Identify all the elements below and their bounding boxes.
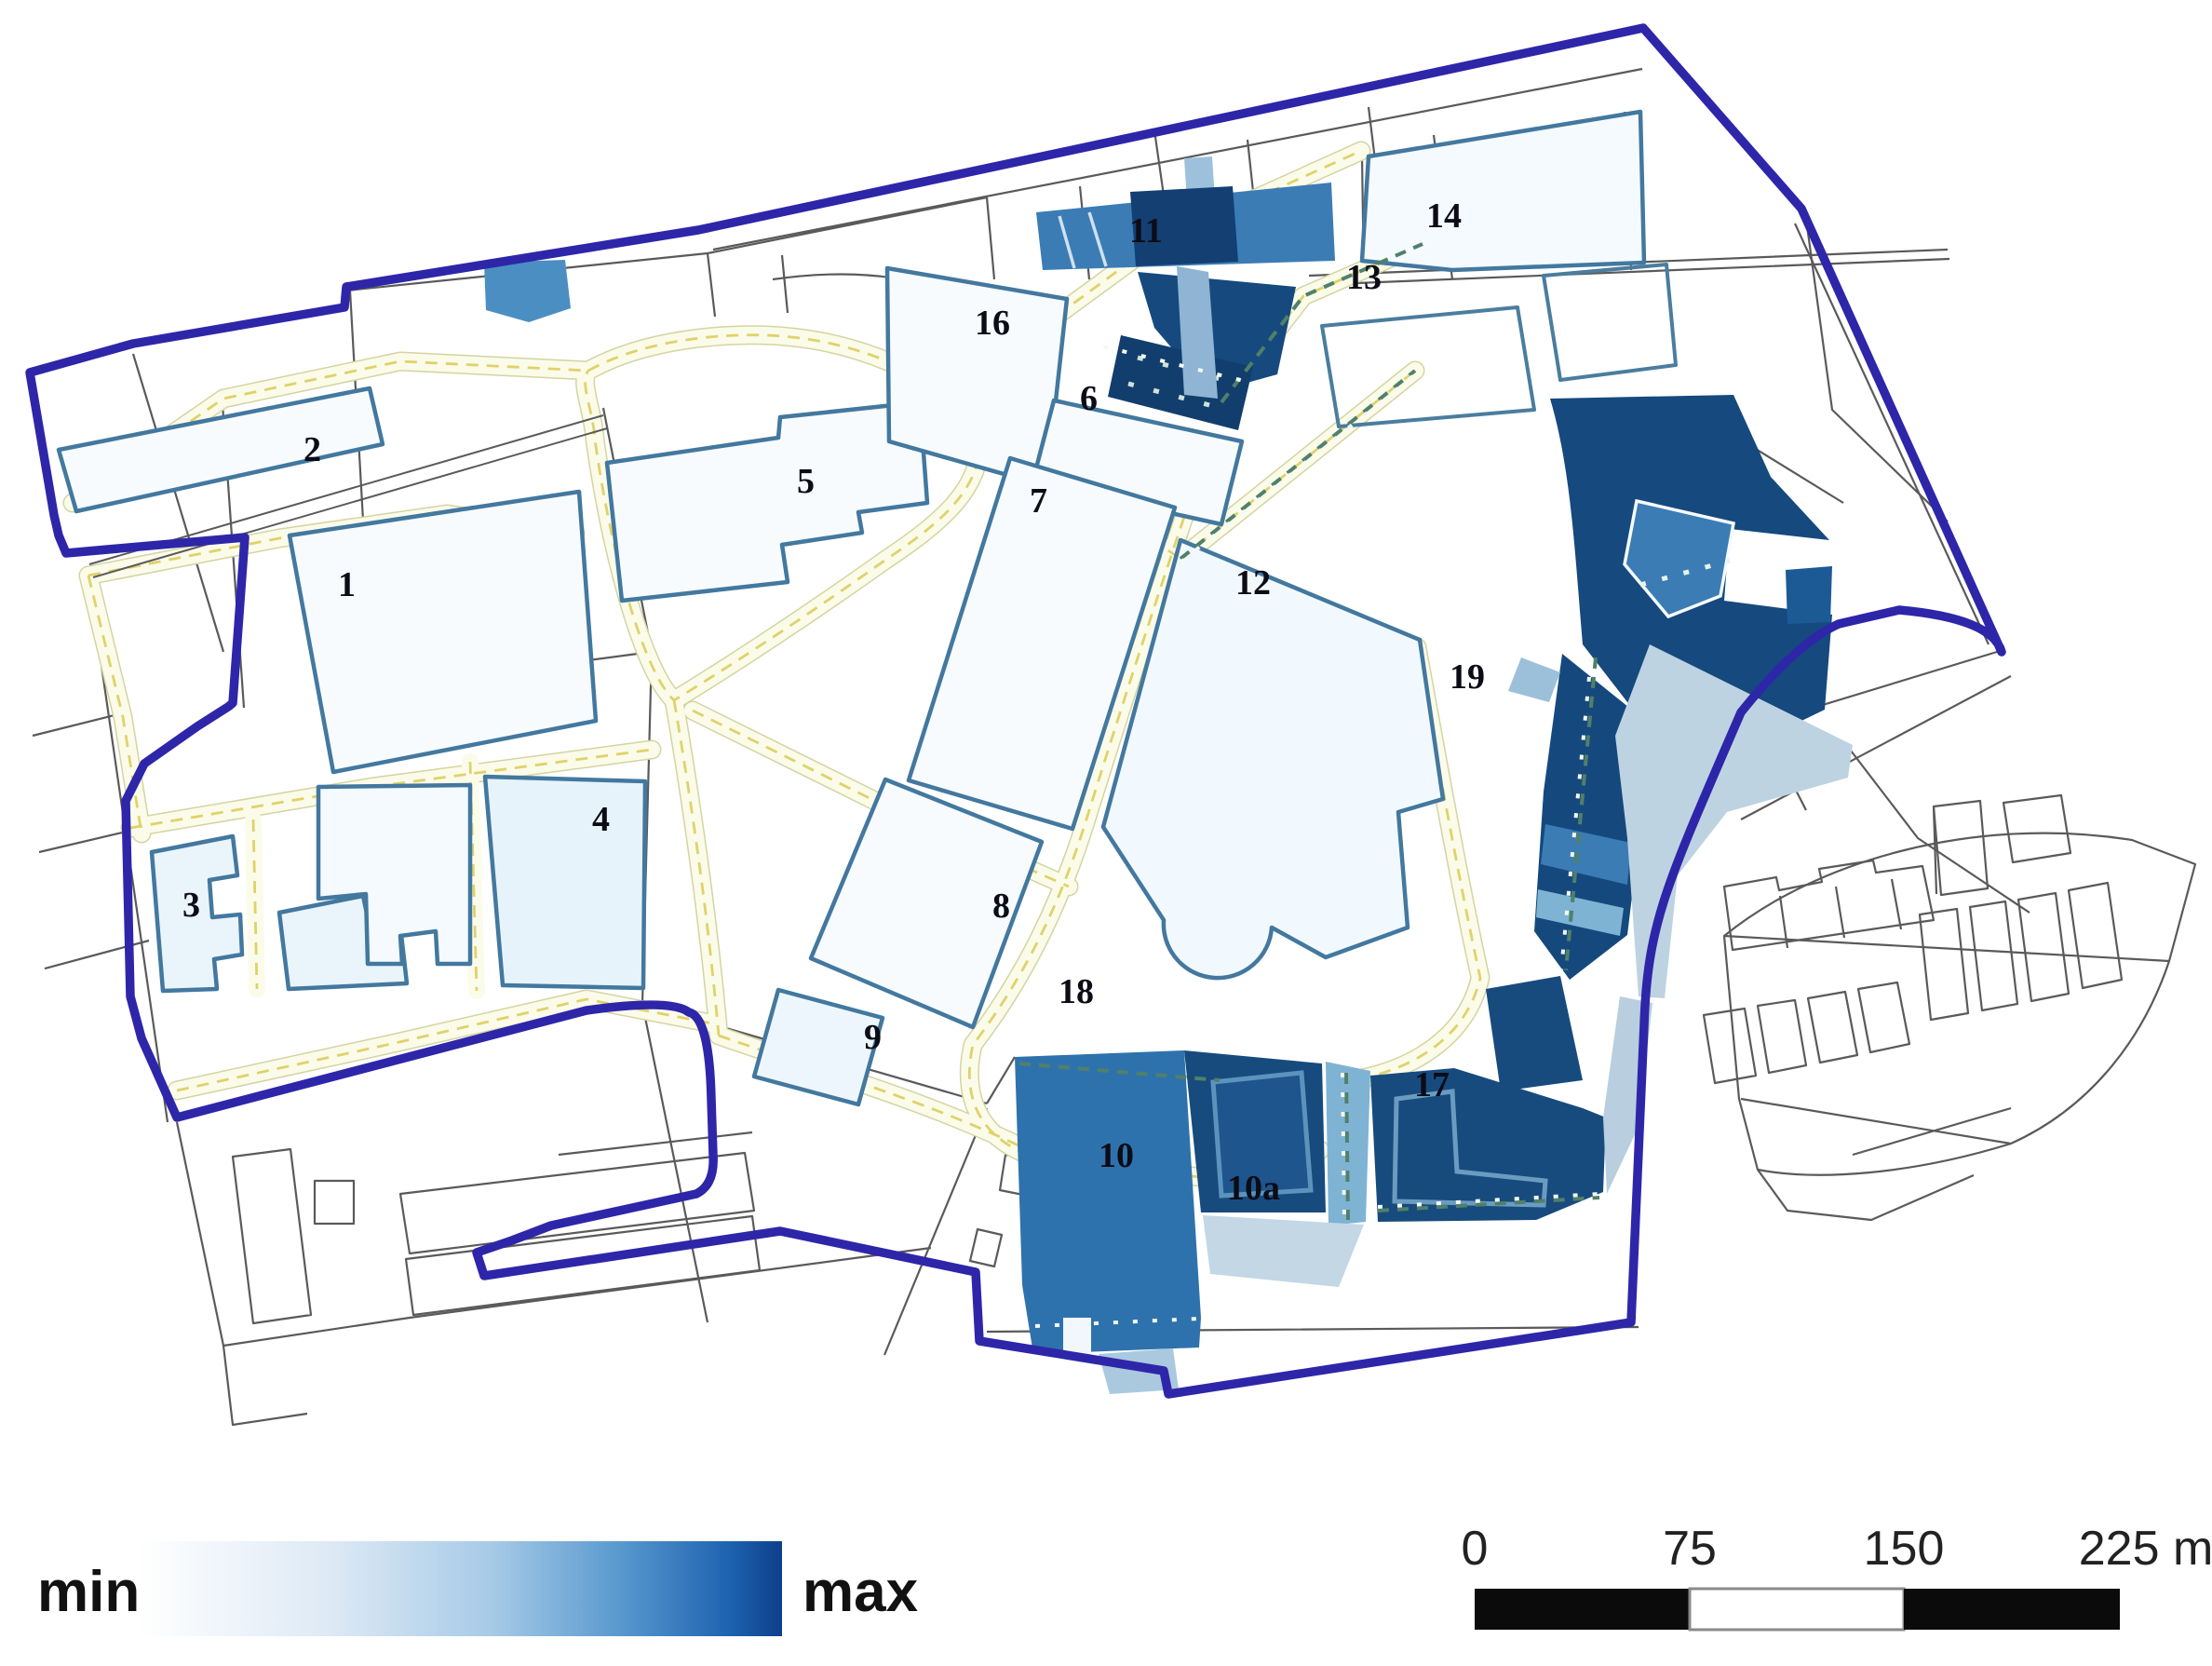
svg-text:75: 75: [1663, 1522, 1717, 1576]
svg-text:16: 16: [975, 304, 1010, 343]
svg-text:2: 2: [303, 430, 321, 469]
svg-text:0: 0: [1462, 1522, 1489, 1576]
svg-text:17: 17: [1414, 1065, 1450, 1104]
svg-text:9: 9: [864, 1018, 882, 1057]
svg-text:3: 3: [182, 886, 200, 925]
svg-text:max: max: [803, 1560, 919, 1624]
svg-text:7: 7: [1030, 481, 1047, 521]
svg-text:10: 10: [1099, 1136, 1134, 1175]
svg-text:5: 5: [797, 462, 815, 501]
svg-text:18: 18: [1059, 972, 1094, 1011]
svg-text:150: 150: [1864, 1522, 1945, 1576]
svg-text:19: 19: [1450, 657, 1485, 697]
svg-text:4: 4: [592, 800, 610, 839]
svg-text:12: 12: [1235, 563, 1271, 603]
svg-text:min: min: [37, 1560, 140, 1624]
svg-text:11: 11: [1129, 211, 1163, 251]
svg-text:6: 6: [1080, 379, 1098, 418]
svg-text:14: 14: [1426, 196, 1462, 236]
svg-text:8: 8: [992, 887, 1010, 926]
svg-text:13: 13: [1346, 258, 1382, 297]
svg-text:10a: 10a: [1227, 1169, 1280, 1208]
svg-text:225 m: 225 m: [2079, 1522, 2212, 1576]
svg-text:1: 1: [338, 565, 356, 604]
